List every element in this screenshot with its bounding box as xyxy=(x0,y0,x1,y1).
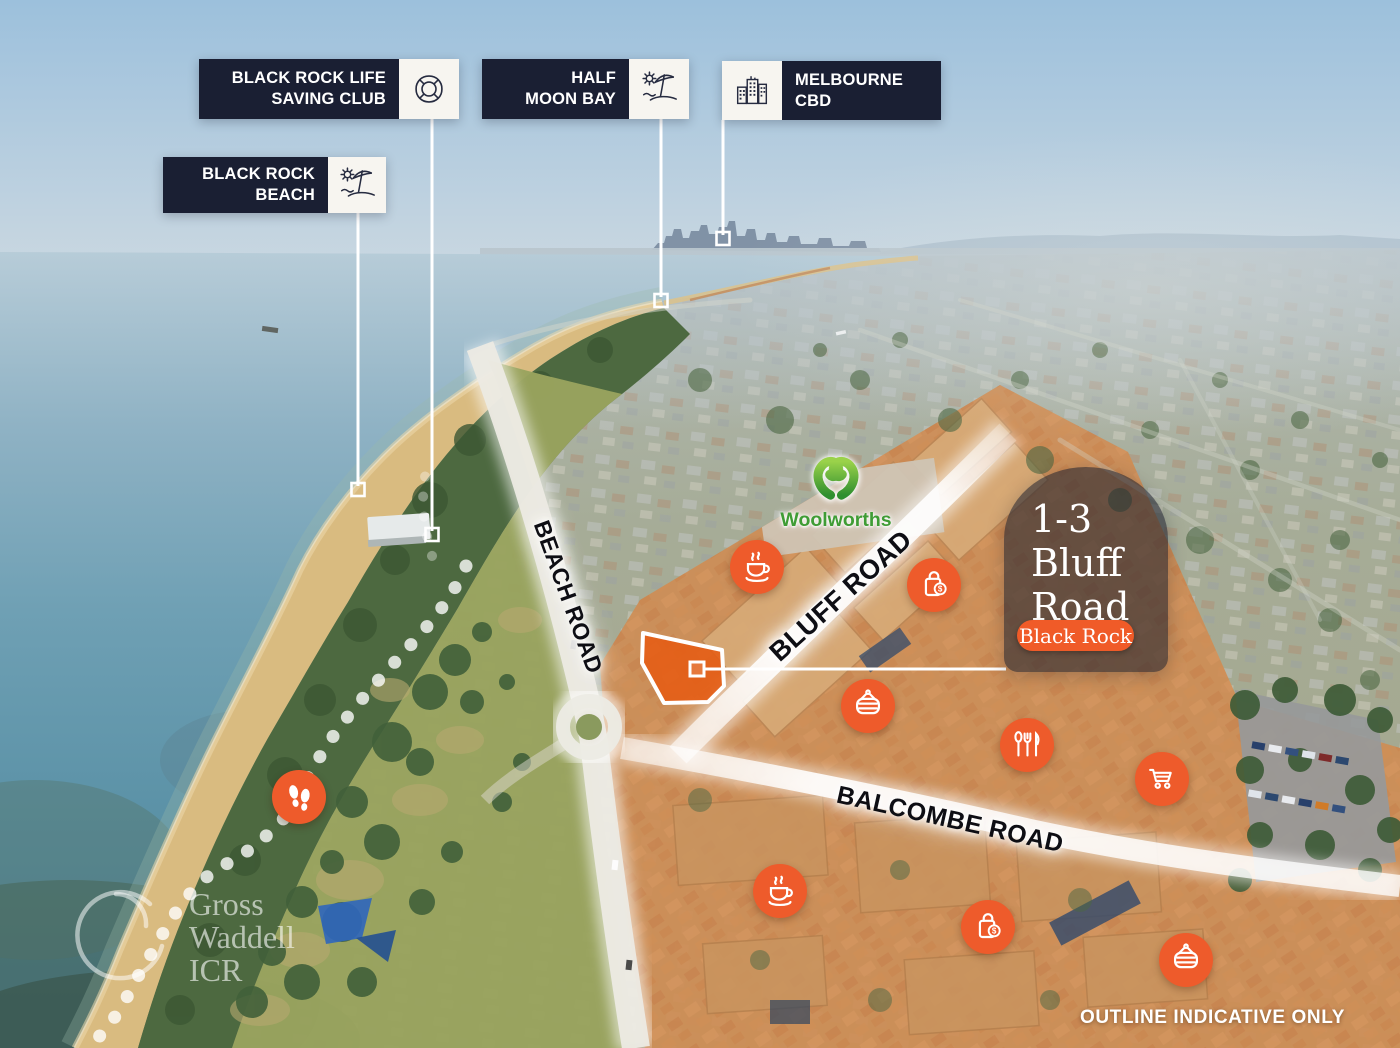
label-life-saving-club: BLACK ROCK LIFE SAVING CLUB xyxy=(199,59,459,119)
svg-text:$: $ xyxy=(938,585,943,594)
label-line: BEACH xyxy=(255,185,315,206)
suburb-badge: Black Rock xyxy=(1017,620,1134,651)
dining-marker-icon xyxy=(1000,718,1054,772)
address-line: 1-3 xyxy=(1031,497,1129,541)
beach-umbrella-icon xyxy=(629,59,689,119)
beach-umbrella-icon xyxy=(328,157,386,213)
gross-waddell-icr-wordmark: Gross Waddell ICR xyxy=(189,888,295,987)
property-marker xyxy=(690,662,704,676)
woolworths-logo: Woolworths xyxy=(776,450,896,532)
label-line: CBD xyxy=(795,91,831,112)
label-half-moon-bay: HALF MOON BAY xyxy=(482,59,689,119)
label-line: HALF xyxy=(571,68,616,89)
gross-waddell-icr-logo-icon xyxy=(50,884,180,1004)
watermark-line: Waddell xyxy=(189,921,295,954)
leader-lines xyxy=(358,119,723,531)
label-melbourne-cbd: MELBOURNE CBD xyxy=(722,61,941,120)
label-black-rock-beach: BLACK ROCK BEACH xyxy=(163,157,386,213)
woolworths-wordmark: Woolworths xyxy=(776,509,896,532)
aerial-marketing-map: BLACK ROCK LIFE SAVING CLUB BLACK ROCK B… xyxy=(0,0,1400,1048)
watermark-line: Gross xyxy=(189,888,295,921)
svg-text:$: $ xyxy=(992,927,997,936)
label-line: BLACK ROCK xyxy=(202,164,315,185)
outline-disclaimer: OUTLINE INDICATIVE ONLY xyxy=(1080,1007,1345,1029)
shopping-cart-marker-icon xyxy=(1135,752,1189,806)
watermark-line: ICR xyxy=(189,954,295,987)
woolworths-apple-icon xyxy=(807,450,865,506)
shopping-basket-marker-icon xyxy=(841,679,895,733)
label-line: MOON BAY xyxy=(525,89,616,110)
property-title-panel: 1-3 Bluff Road Black Rock xyxy=(1004,467,1168,672)
shopping-basket-marker-icon xyxy=(1159,933,1213,987)
shopping-bag-marker-icon: $ xyxy=(961,900,1015,954)
coffee-marker-icon xyxy=(730,540,784,594)
leader-markers xyxy=(352,232,730,541)
footprints-marker-icon xyxy=(272,770,326,824)
city-buildings-icon xyxy=(722,61,782,120)
life-ring-icon xyxy=(399,59,459,119)
label-line: MELBOURNE xyxy=(795,70,903,91)
address-line: Bluff xyxy=(1031,541,1129,585)
property-address: 1-3 Bluff Road xyxy=(1031,497,1129,629)
coffee-marker-icon xyxy=(753,864,807,918)
label-line: BLACK ROCK LIFE xyxy=(232,68,386,89)
shopping-bag-marker-icon: $ xyxy=(907,558,961,612)
label-line: SAVING CLUB xyxy=(271,89,386,110)
